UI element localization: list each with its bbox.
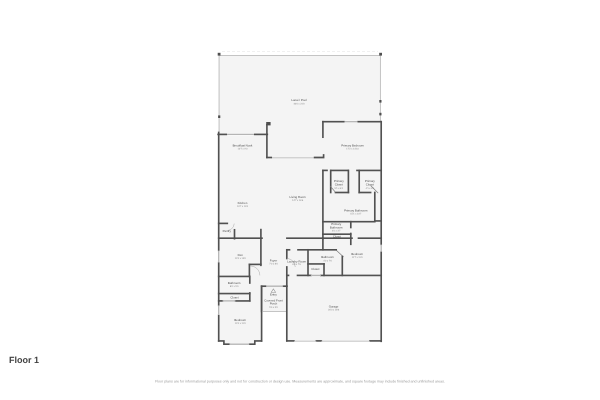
svg-text:Lanai / Pool: Lanai / Pool xyxy=(291,98,307,102)
svg-text:4'0 x 7'6: 4'0 x 7'6 xyxy=(323,259,332,262)
svg-text:Laundry Room: Laundry Room xyxy=(287,260,307,264)
svg-text:Closet: Closet xyxy=(230,295,238,299)
svg-text:Bedroom: Bedroom xyxy=(351,252,363,256)
svg-text:Garage: Garage xyxy=(329,304,339,308)
svg-text:26'0 x 18'6: 26'0 x 18'6 xyxy=(328,309,340,312)
svg-text:Kitchen: Kitchen xyxy=(238,201,248,205)
svg-text:Foyer: Foyer xyxy=(270,258,277,262)
svg-text:46'0 x 24'0: 46'0 x 24'0 xyxy=(293,103,305,106)
svg-text:4'0 x 3'7: 4'0 x 3'7 xyxy=(332,230,341,233)
svg-text:Entry: Entry xyxy=(270,293,277,297)
svg-text:6'0 x 7'6: 6'0 x 7'6 xyxy=(292,263,301,266)
svg-text:Living Room: Living Room xyxy=(290,195,307,199)
svg-text:Closet: Closet xyxy=(311,267,319,271)
svg-text:Porch: Porch xyxy=(270,302,278,306)
svg-text:12'0 x 11'0: 12'0 x 11'0 xyxy=(235,322,247,325)
svg-text:17'2 x 14'10: 17'2 x 14'10 xyxy=(346,148,359,151)
svg-text:5'1 x 6'1: 5'1 x 6'1 xyxy=(335,187,344,190)
svg-text:Bathroom: Bathroom xyxy=(228,281,241,285)
svg-text:Den: Den xyxy=(238,253,244,257)
svg-text:Primary Bedroom: Primary Bedroom xyxy=(341,143,364,147)
svg-text:10'7 x 9'0: 10'7 x 9'0 xyxy=(238,148,249,151)
svg-text:Bedroom: Bedroom xyxy=(234,318,246,322)
svg-text:15'1 x 10'7: 15'1 x 10'7 xyxy=(350,213,362,216)
svg-text:Primary Bathroom: Primary Bathroom xyxy=(344,209,368,213)
svg-text:10'7 x 13'0: 10'7 x 13'0 xyxy=(237,205,249,208)
svg-text:Bathroom: Bathroom xyxy=(321,255,334,259)
svg-text:Closet: Closet xyxy=(366,182,374,186)
svg-text:Pantry: Pantry xyxy=(223,229,232,233)
svg-text:7'0 x 8'0: 7'0 x 8'0 xyxy=(269,263,278,266)
svg-text:Breakfast Nook: Breakfast Nook xyxy=(233,143,253,147)
svg-text:Closet: Closet xyxy=(335,182,343,186)
svg-text:8'0 x 5'0: 8'0 x 5'0 xyxy=(230,285,239,288)
svg-text:12'0 x 10'0: 12'0 x 10'0 xyxy=(235,257,247,260)
svg-text:11'7 x 11'0: 11'7 x 11'0 xyxy=(352,256,363,259)
svg-text:14'7 x 16'6: 14'7 x 16'6 xyxy=(292,199,304,202)
svg-text:Bathroom: Bathroom xyxy=(330,225,343,229)
svg-text:5'9 x 5'0: 5'9 x 5'0 xyxy=(269,306,278,309)
svg-text:Floor 1: Floor 1 xyxy=(9,355,39,365)
svg-text:4'1 x 6'1: 4'1 x 6'1 xyxy=(366,187,375,190)
svg-text:Floor plans are for informatio: Floor plans are for informational purpos… xyxy=(155,380,445,384)
